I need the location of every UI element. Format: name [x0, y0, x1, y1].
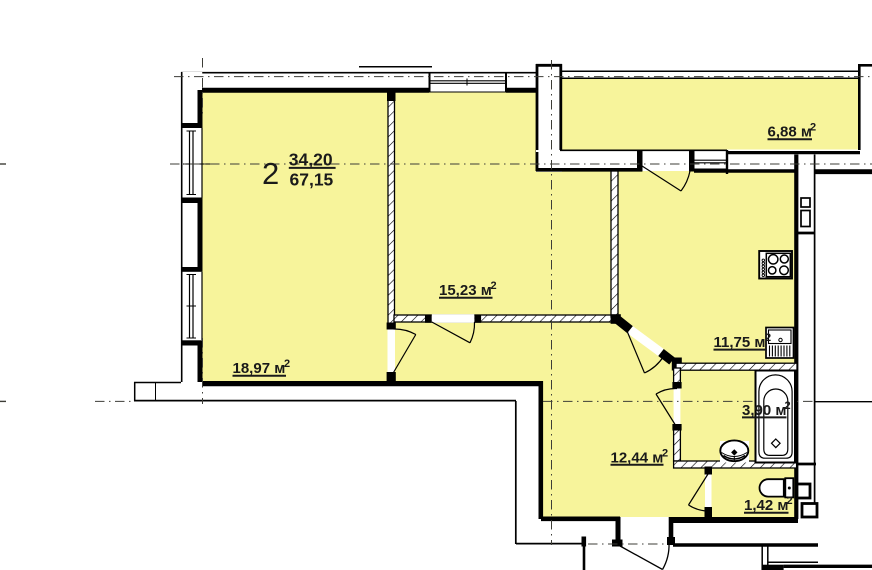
svg-text:2: 2 [662, 447, 668, 459]
svg-text:15,23 м: 15,23 м [439, 282, 492, 299]
svg-text:2: 2 [765, 332, 771, 344]
svg-text:2: 2 [491, 280, 497, 292]
svg-text:2: 2 [262, 156, 279, 191]
svg-text:2: 2 [284, 358, 290, 370]
svg-text:2: 2 [787, 495, 793, 507]
svg-text:6,88 м: 6,88 м [768, 124, 812, 141]
svg-text:1,42 м: 1,42 м [744, 497, 788, 514]
svg-text:18,97 м: 18,97 м [233, 360, 286, 377]
svg-text:2: 2 [810, 122, 816, 134]
svg-text:67,15: 67,15 [290, 169, 334, 189]
svg-text:34,20: 34,20 [289, 150, 333, 170]
svg-text:11,75 м: 11,75 м [714, 334, 766, 351]
svg-text:2: 2 [785, 400, 791, 412]
